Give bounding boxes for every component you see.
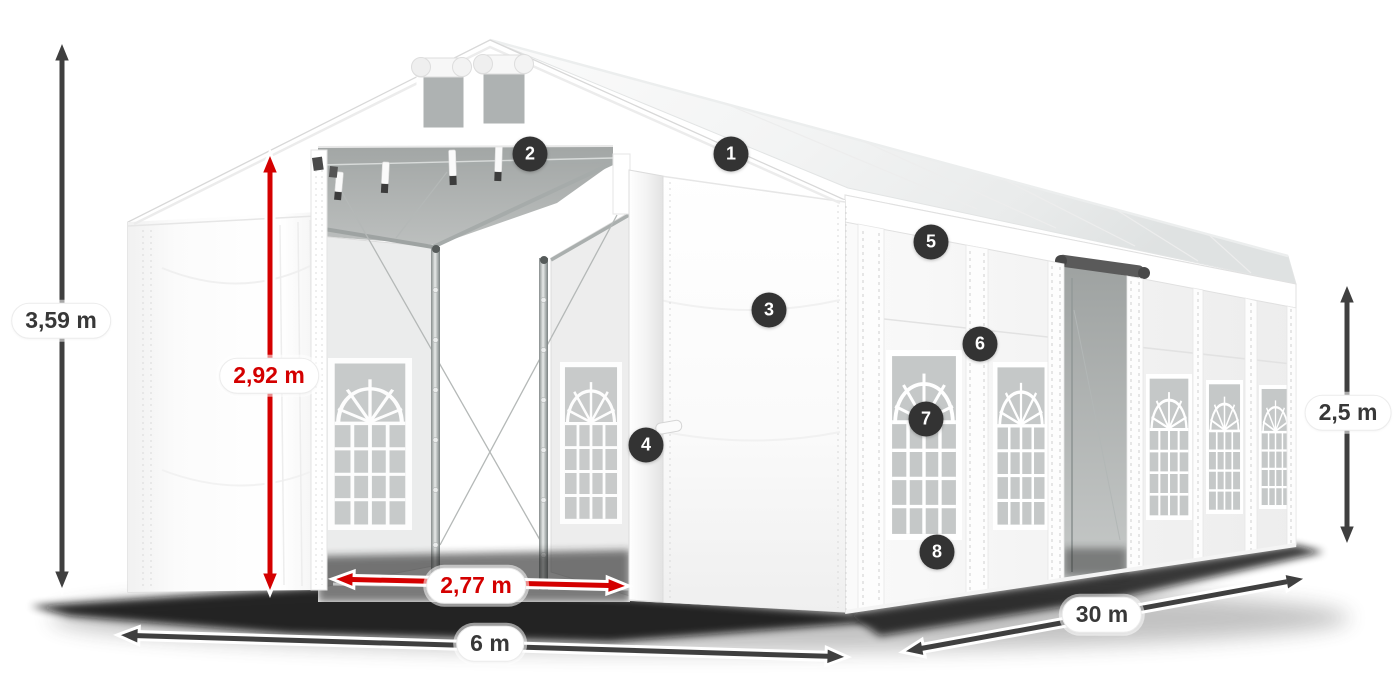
front-entrance-interior: [318, 146, 630, 602]
jamb-clamp-icon: [312, 157, 324, 171]
label-length: 30 m: [1062, 597, 1142, 633]
label-entrance-width: 2,77 m: [426, 568, 526, 604]
label-side-height: 2,5 m: [1305, 395, 1392, 431]
marker-4[interactable]: 4: [629, 428, 664, 463]
label-entrance-height: 2,92 m: [219, 358, 319, 394]
rolled-entrance-door: [629, 170, 663, 602]
marker-3[interactable]: 3: [752, 293, 787, 328]
marker-7[interactable]: 7: [909, 402, 944, 437]
tent-illustration: [0, 0, 1400, 700]
marker-5[interactable]: 5: [914, 225, 949, 260]
marker-6[interactable]: 6: [963, 327, 998, 362]
marker-8[interactable]: 8: [920, 535, 955, 570]
marker-2[interactable]: 2: [513, 137, 548, 172]
label-total-height: 3,59 m: [11, 303, 111, 339]
tent-dimension-diagram: 3,59 m 2,92 m 2,77 m 6 m 30 m 2,5 m 1 2 …: [0, 0, 1400, 700]
label-front-width: 6 m: [456, 626, 524, 662]
jamb-clamp-icon: [329, 166, 338, 178]
marker-1[interactable]: 1: [714, 137, 749, 172]
